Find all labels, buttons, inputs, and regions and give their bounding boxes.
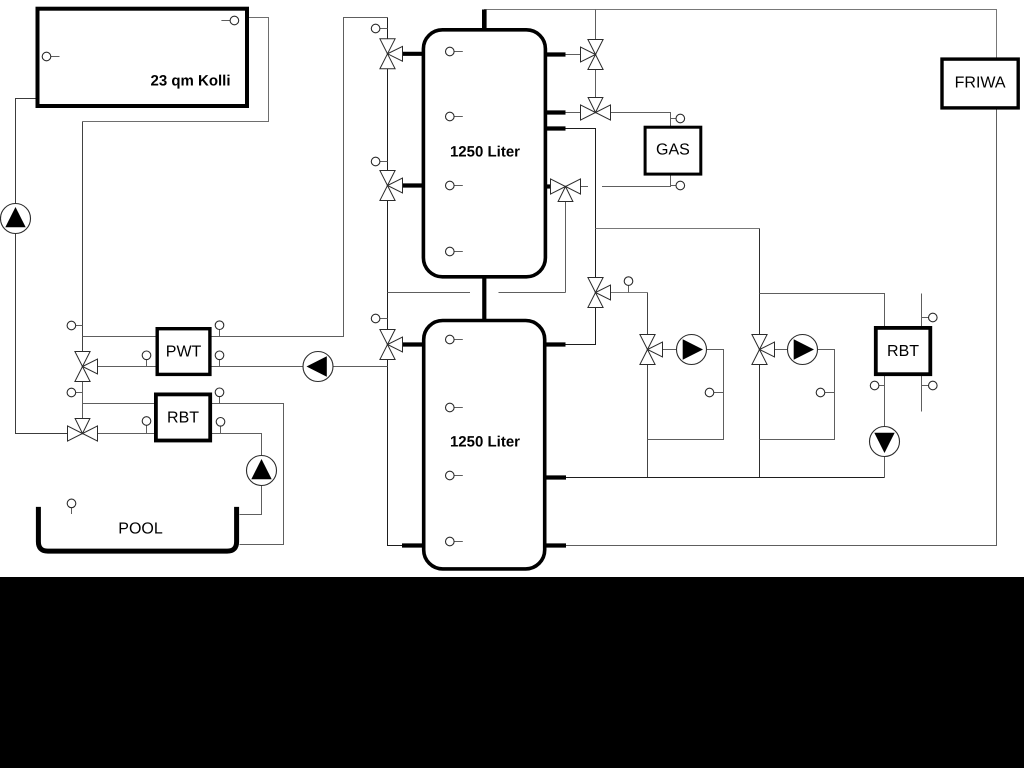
svg-text:RBT: RBT (167, 409, 199, 426)
svg-text:PWT: PWT (166, 344, 202, 361)
svg-text:RBT: RBT (887, 343, 919, 360)
svg-text:1250 Liter: 1250 Liter (450, 144, 520, 161)
svg-text:1250 Liter: 1250 Liter (450, 434, 520, 451)
svg-text:23 qm Kolli: 23 qm Kolli (150, 72, 230, 89)
svg-text:POOL: POOL (118, 521, 163, 538)
svg-text:GAS: GAS (656, 141, 690, 158)
svg-text:FRIWA: FRIWA (955, 75, 1006, 92)
